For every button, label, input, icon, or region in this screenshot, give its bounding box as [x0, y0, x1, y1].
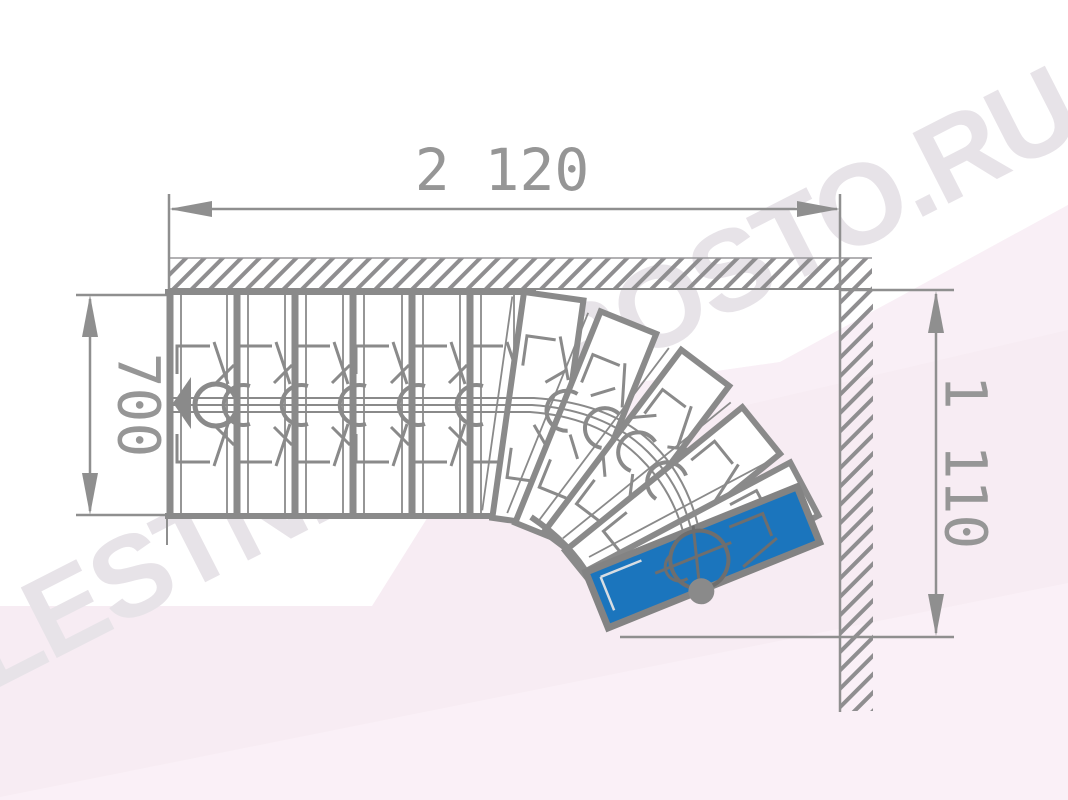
top-wall [168, 258, 872, 289]
right-wall [841, 289, 873, 711]
stair-plan-drawing: LESTNICY-PROSTO.RU 2 120 700 1 110 [0, 0, 1068, 800]
stair-plan-screenshot: LESTNICY-PROSTO.RU 2 120 700 1 110 [0, 0, 1068, 800]
dimension-label-right: 1 110 [932, 375, 1000, 550]
dimension-label-top: 2 120 [415, 136, 590, 204]
dimension-label-left: 700 [105, 353, 173, 458]
